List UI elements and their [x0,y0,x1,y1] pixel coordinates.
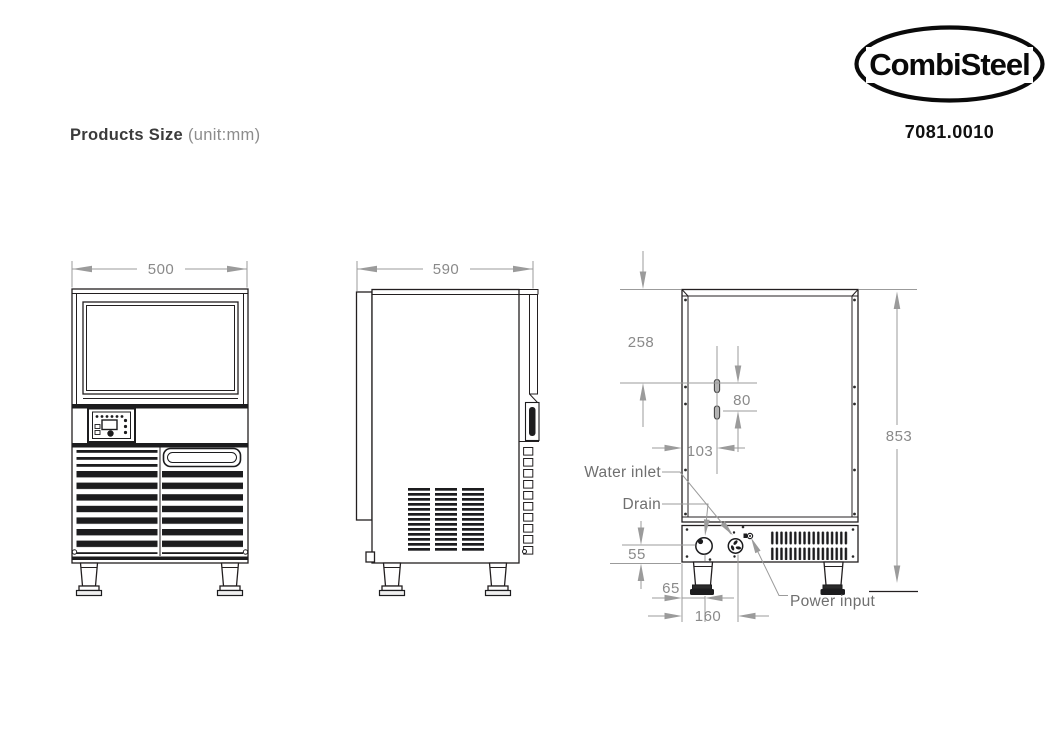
drain-label: Drain [622,496,661,513]
side-back-rail [530,295,538,395]
side-front-bracket [366,552,375,562]
front-view [72,289,248,596]
technical-drawing: 500 590 258 80 103 [0,0,1061,729]
water-inlet-label: Water inlet [584,464,661,481]
side-leg-front [380,563,405,596]
front-leg-left [77,563,102,596]
front-control-panel [88,409,135,443]
front-screw-left [72,550,76,554]
side-vents [408,488,484,553]
front-handle [164,449,241,467]
holes-from-edge-value: 103 [687,443,714,460]
back-vent-grille [770,530,848,560]
back-panel [682,290,858,523]
drain-height-value: 55 [628,546,646,563]
front-separator-band-bottom [72,443,248,448]
power-connector [744,533,753,538]
back-leg-left [690,562,714,595]
total-height-value: 853 [886,428,913,445]
inlet-offset-value: 160 [695,608,722,625]
side-screw [523,550,527,554]
drain-offset-value: 65 [662,580,680,597]
dimension-front-width: 500 [72,261,247,288]
front-door [83,302,238,399]
power-input-label: Power input [790,593,876,610]
back-leg-right [821,562,846,595]
drain-fitting [696,538,712,554]
top-to-holes-value: 258 [628,334,655,351]
front-leg-right [218,563,243,596]
side-inlet-bracket [519,403,539,442]
control-power-button [107,430,113,436]
side-depth-value: 590 [433,261,460,278]
control-display [102,420,117,430]
side-back-vent-holes [523,447,534,557]
front-vents-left [77,450,158,554]
side-leg-rear [486,563,511,596]
dimension-side-depth: 590 [357,261,533,291]
hole-spacing-value: 80 [733,392,751,409]
front-vents-right [162,471,243,554]
front-screw-right [243,550,247,554]
side-view [357,290,540,596]
front-width-value: 500 [148,261,175,278]
side-door-slab [357,292,373,520]
